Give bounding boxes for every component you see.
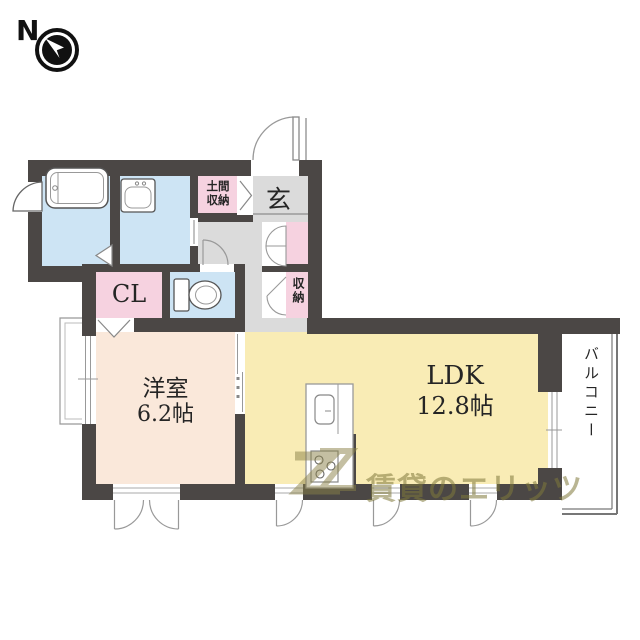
balcony-label: バルコニー bbox=[581, 346, 602, 516]
room-sliding-door-icon bbox=[237, 334, 243, 412]
bathroom-door-icon bbox=[96, 245, 112, 266]
bath-exterior-door-icon bbox=[13, 182, 42, 211]
western-room-label: 洋室 6.2帖 bbox=[96, 376, 235, 429]
compass-north-label: N bbox=[16, 14, 39, 47]
washbasin-icon bbox=[121, 179, 155, 212]
upper-closet-doors-icon bbox=[266, 226, 286, 266]
toilet-door-icon bbox=[203, 240, 228, 265]
watermark-text: 賃貸のエリッツ bbox=[366, 464, 583, 508]
compass-icon bbox=[37, 30, 77, 70]
doma-door-icon bbox=[240, 181, 252, 210]
ldk-label: LDK 12.8帖 bbox=[320, 362, 590, 421]
western-room-name: 洋室 bbox=[96, 376, 235, 402]
entrance-label: 玄 bbox=[266, 180, 291, 216]
bathtub-icon bbox=[46, 168, 108, 208]
plan-detail-layer bbox=[0, 0, 640, 640]
doma-storage-label: 土間収納 bbox=[204, 179, 232, 208]
entrance-door-icon bbox=[253, 117, 306, 160]
ldk-name: LDK bbox=[320, 362, 590, 391]
bay-window-icon bbox=[60, 318, 98, 424]
western-room-size: 6.2帖 bbox=[96, 402, 235, 428]
cl-fold-door-icon bbox=[98, 320, 130, 337]
hall-storage-label: 収納 bbox=[290, 277, 307, 305]
hall-storage-door-icon bbox=[267, 277, 286, 315]
ldk-size: 12.8帖 bbox=[320, 391, 590, 421]
toilet-icon bbox=[174, 279, 221, 311]
closet-label: CL bbox=[96, 280, 162, 308]
